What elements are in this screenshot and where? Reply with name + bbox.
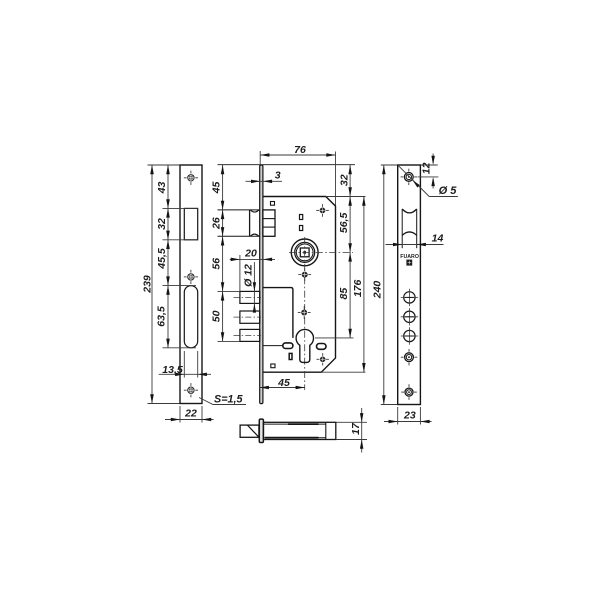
svg-text:43: 43 (156, 182, 168, 195)
svg-text:Ø 5: Ø 5 (439, 185, 458, 197)
svg-text:FUARO: FUARO (400, 254, 419, 260)
svg-text:14: 14 (432, 233, 444, 245)
svg-text:S=1,5: S=1,5 (214, 393, 244, 405)
svg-text:76: 76 (294, 144, 306, 156)
svg-text:12: 12 (421, 162, 433, 174)
svg-text:45: 45 (210, 182, 222, 195)
svg-text:45,5: 45,5 (156, 248, 168, 270)
svg-text:240: 240 (372, 281, 384, 300)
svg-text:3: 3 (275, 170, 281, 182)
svg-text:176: 176 (352, 279, 364, 297)
svg-text:17: 17 (350, 422, 362, 435)
svg-text:56,5: 56,5 (338, 213, 350, 234)
svg-text:50: 50 (210, 310, 222, 322)
svg-text:239: 239 (142, 275, 154, 294)
svg-text:63,5: 63,5 (156, 306, 168, 327)
svg-text:85: 85 (338, 288, 350, 300)
svg-text:32: 32 (338, 174, 350, 186)
svg-text:56: 56 (210, 258, 222, 270)
svg-text:13,5: 13,5 (162, 364, 183, 376)
svg-text:26: 26 (210, 217, 222, 230)
svg-text:45: 45 (277, 377, 290, 389)
svg-text:Ø 12: Ø 12 (242, 264, 254, 287)
svg-text:22: 22 (184, 407, 197, 419)
svg-text:20: 20 (244, 247, 257, 259)
svg-text:32: 32 (156, 218, 168, 230)
svg-text:23: 23 (403, 410, 416, 422)
